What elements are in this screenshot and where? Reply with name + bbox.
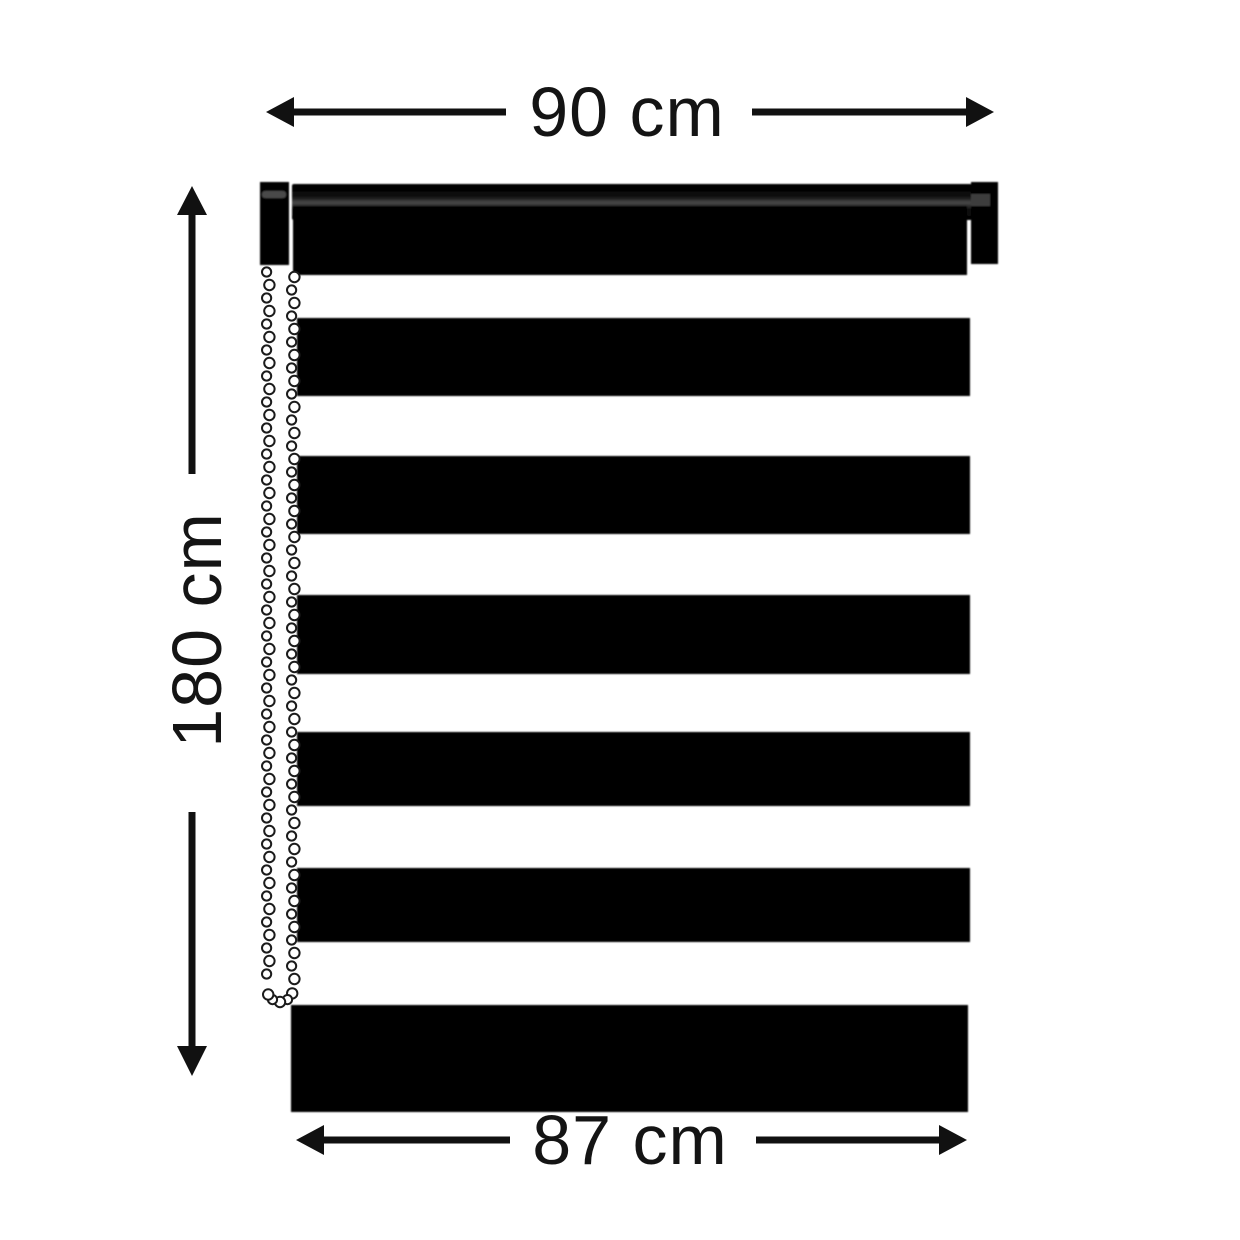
chain-link	[287, 909, 296, 918]
chain-link	[287, 857, 296, 866]
chain-link	[289, 324, 299, 334]
chain-link	[287, 389, 296, 398]
chain-link	[287, 545, 296, 554]
chain-link	[287, 727, 296, 736]
chain-link	[287, 831, 296, 840]
chain-link	[287, 519, 296, 528]
chain-link	[289, 662, 299, 672]
chain-link	[289, 636, 299, 646]
chain-link	[262, 709, 271, 718]
chain-link	[262, 475, 271, 484]
chain-link	[264, 956, 274, 966]
chain-link	[287, 649, 296, 658]
chain-link	[289, 870, 299, 880]
arrowhead-right-icon	[966, 97, 994, 127]
chain-link	[262, 891, 271, 900]
chain-link	[287, 363, 296, 372]
chain-link	[262, 683, 271, 692]
chain-link	[262, 605, 271, 614]
chain-link	[289, 584, 299, 594]
bottom-width-label: 87 cm	[532, 1101, 728, 1179]
chain-link	[262, 553, 271, 562]
chain-link	[264, 306, 274, 316]
chain-link	[287, 675, 296, 684]
chain-link	[287, 441, 296, 450]
chain-link	[287, 311, 296, 320]
blind-stripe	[297, 456, 970, 534]
chain-link	[264, 488, 274, 498]
arrowhead-up-icon	[177, 186, 207, 215]
chain-link	[262, 761, 271, 770]
blind-headrail	[260, 182, 998, 275]
chain-link	[289, 714, 299, 724]
chain-link	[262, 969, 271, 978]
blind-stripe	[297, 318, 970, 396]
chain-link	[262, 735, 271, 744]
chain-link	[289, 454, 299, 464]
chain-link	[262, 839, 271, 848]
chain-link	[289, 506, 299, 516]
chain-link	[262, 631, 271, 640]
chain-link	[264, 514, 274, 524]
chain-link	[287, 571, 296, 580]
chain-link	[287, 623, 296, 632]
chain-link	[264, 774, 274, 784]
chain-link	[264, 540, 274, 550]
chain-link	[264, 644, 274, 654]
chain-link	[264, 436, 274, 446]
chain-link	[264, 358, 274, 368]
chain-link	[289, 558, 299, 568]
chain-link	[264, 852, 274, 862]
chain-link	[262, 371, 271, 380]
chain-link	[287, 493, 296, 502]
chain-link	[262, 345, 271, 354]
chain-link	[287, 753, 296, 762]
chain-link	[264, 826, 274, 836]
top-width-dimension: 90 cm	[266, 73, 994, 151]
chain-link	[287, 701, 296, 710]
chain-link	[289, 298, 299, 308]
chain-link	[287, 467, 296, 476]
chain-link	[262, 943, 271, 952]
blind-stripe	[297, 868, 970, 942]
chain-link	[264, 800, 274, 810]
chain-link	[264, 748, 274, 758]
chain-link	[289, 818, 299, 828]
product-dimension-diagram: 90 cm 180 cm 87 cm	[0, 0, 1240, 1240]
chain-link	[264, 280, 274, 290]
chain-link	[264, 696, 274, 706]
chain-link	[264, 332, 274, 342]
chain-link	[287, 961, 296, 970]
chain-link	[289, 350, 299, 360]
chain-link	[262, 501, 271, 510]
blind-stripe	[297, 595, 970, 674]
left-height-label: 180 cm	[158, 512, 236, 748]
chain-link	[262, 527, 271, 536]
bottom-width-dimension: 87 cm	[296, 1101, 967, 1179]
chain-link	[262, 423, 271, 432]
chain-link	[264, 904, 274, 914]
chain-link	[287, 805, 296, 814]
chain-link	[264, 592, 274, 602]
chain-link	[289, 974, 299, 984]
chain-link	[262, 865, 271, 874]
arrowhead-down-icon	[177, 1046, 207, 1076]
chain-link	[289, 766, 299, 776]
chain-link	[262, 319, 271, 328]
chain-link	[289, 272, 299, 282]
pull-chain[interactable]	[262, 267, 300, 1007]
chain-link	[287, 337, 296, 346]
chain-link	[287, 285, 296, 294]
chain-link	[287, 779, 296, 788]
chain-link	[264, 462, 274, 472]
chain-link	[264, 722, 274, 732]
chain-link	[289, 740, 299, 750]
chain-link	[262, 293, 271, 302]
chain-link	[264, 670, 274, 680]
chain-link	[264, 384, 274, 394]
chain-link	[289, 428, 299, 438]
bracket-right-highlight	[971, 194, 990, 206]
chain-link	[262, 657, 271, 666]
chain-link	[264, 878, 274, 888]
chain-link	[264, 930, 274, 940]
chain-link	[289, 480, 299, 490]
chain-link	[262, 813, 271, 822]
chain-link	[262, 267, 271, 276]
chain-link	[289, 792, 299, 802]
chain-link	[264, 410, 274, 420]
chain-link	[262, 449, 271, 458]
fabric-top-panel	[293, 206, 967, 275]
chain-link	[289, 948, 299, 958]
chain-link	[289, 376, 299, 386]
chain-link	[262, 917, 271, 926]
bracket-left-highlight	[262, 191, 286, 198]
arrowhead-left-icon	[296, 1125, 324, 1155]
chain-link	[287, 883, 296, 892]
chain-link	[262, 787, 271, 796]
chain-link	[264, 618, 274, 628]
top-width-label: 90 cm	[529, 73, 725, 151]
chain-link	[289, 402, 299, 412]
chain-link	[289, 688, 299, 698]
chain-link	[287, 597, 296, 606]
chain-link	[289, 610, 299, 620]
stripe-bands	[291, 318, 970, 1112]
chain-link	[289, 532, 299, 542]
chain-link	[289, 922, 299, 932]
left-height-dimension: 180 cm	[158, 186, 236, 1076]
chain-link	[262, 397, 271, 406]
arrowhead-right-icon	[939, 1125, 967, 1155]
blind-diagram: 90 cm 180 cm 87 cm	[0, 0, 1240, 1240]
chain-link	[262, 579, 271, 588]
chain-link	[287, 935, 296, 944]
chain-link	[289, 896, 299, 906]
blind-stripe	[297, 732, 970, 806]
chain-link	[289, 844, 299, 854]
chain-link	[287, 415, 296, 424]
chain-link	[263, 989, 273, 999]
chain-link	[264, 566, 274, 576]
blind-stripe	[291, 1005, 968, 1112]
arrowhead-left-icon	[266, 97, 294, 127]
